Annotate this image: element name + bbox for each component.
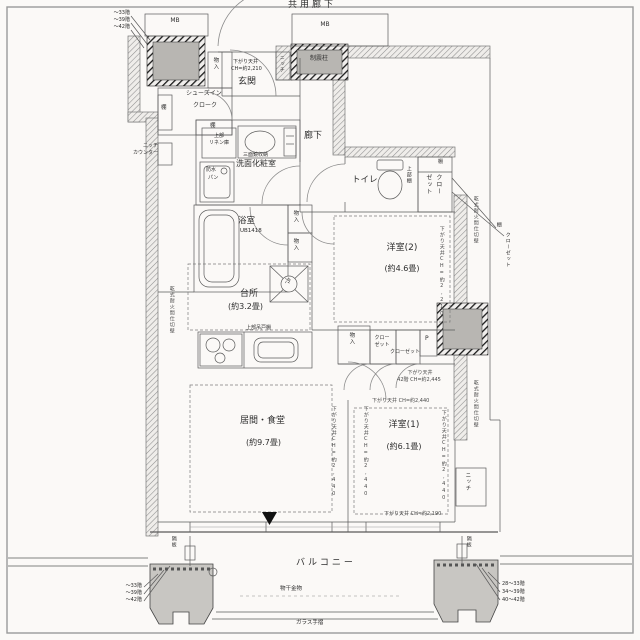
label-floor-range-topleft-3: 〜42階 — [96, 25, 130, 31]
label-mirror-cabinet: 三面鏡収納 — [243, 153, 268, 159]
label-shelf-sic-left: 棚 — [161, 105, 167, 111]
label-bedroom2-size: (約4.6畳) — [372, 264, 432, 273]
label-floor-range-topleft-2: 〜39階 — [96, 18, 130, 24]
label-shoes-in-closet-1: シューズイン — [186, 91, 222, 98]
label-shelf-closet: 棚 — [438, 160, 443, 166]
label-meter-box-right: MB — [310, 22, 340, 29]
label-closet1-line2: ゼット — [368, 343, 396, 349]
label-ceiling-bedroom1-left: 下がり天井CH=約2,440 — [362, 406, 368, 498]
drawing-frame — [7, 7, 633, 633]
label-meter-box-left: MB — [160, 18, 190, 25]
label-partition-right: 隔板 — [465, 536, 471, 548]
direction-marker-icon — [262, 512, 277, 525]
label-closet1-line1: クロー — [368, 336, 396, 342]
label-bedroom1-size: (約6.1畳) — [374, 442, 434, 451]
label-partition-left: 隔板 — [170, 536, 176, 548]
label-fridge: 冷 — [285, 279, 291, 286]
label-shoes-in-closet-2: クローク — [193, 103, 217, 110]
label-closet1-b: クローゼット — [390, 350, 420, 356]
floor-plan: 共用廊下 〜33階 〜39階 〜42階 MB MB 制震柱 物入 ニッチ 下がり… — [0, 0, 640, 640]
label-linen-1: 上部 — [202, 134, 236, 140]
floor-dashed-outlines — [188, 216, 450, 514]
label-storage-mid-1: 物入 — [292, 210, 298, 223]
label-shelf-leader: 棚 — [495, 222, 501, 228]
label-dry-wall-right-lower: 乾式耐火間仕切壁 — [472, 380, 478, 428]
label-seismic-column: 制震柱 — [294, 56, 344, 63]
label-powder-room: 洗面化粧室 — [236, 159, 276, 168]
label-floor-range-topleft-1: 〜33階 — [96, 11, 130, 17]
label-hall-closet-col2: ゼット — [424, 174, 431, 195]
label-floor-range-right-3: 40〜42階 — [502, 598, 525, 604]
label-common-corridor: 共用廊下 — [272, 0, 352, 10]
label-entry-ceiling-2: CH=約2,210 — [231, 67, 262, 73]
label-hall-closet-col1: クロー — [434, 174, 441, 195]
label-ceiling-42f-1: 下がり天井 — [398, 371, 442, 377]
label-laundry-fitting: 物干金物 — [280, 586, 302, 592]
label-bedroom2: 洋室(2) — [372, 243, 432, 253]
label-storage-entry: 物入 — [212, 57, 218, 70]
label-balcony: バルコニー — [296, 558, 356, 568]
label-niche-counter-1: ニッチ — [128, 144, 158, 150]
label-upper-cabinet: 上部吊戸棚 — [246, 326, 271, 332]
label-ceiling-bedroom1-top: 下がり天井 CH=約2,440 — [372, 399, 429, 405]
label-shelf-sic-bottom: 棚 — [210, 123, 216, 129]
label-bath: 浴室 — [238, 217, 255, 227]
label-bath-ub: UB1418 — [240, 228, 262, 234]
label-ceiling-bedroom1-right: 下がり天井CH=約2,440 — [440, 410, 446, 502]
label-floor-range-right-1: 28〜33階 — [502, 582, 525, 588]
label-toilet: トイレ — [352, 176, 378, 186]
label-floor-range-left-1: 〜33階 — [100, 584, 142, 590]
floor-plan-drawing — [0, 0, 640, 640]
label-bedroom1: 洋室(1) — [374, 420, 434, 430]
label-floor-range-left-2: 〜39階 — [100, 591, 142, 597]
label-storage-mid-2: 物入 — [292, 238, 298, 251]
label-dry-wall-right-upper: 乾式耐火間仕切壁 — [472, 196, 478, 244]
structural-columns — [147, 36, 488, 355]
label-ceiling-living: 下がり天井CH=約2,440 — [330, 406, 336, 498]
label-waterproof-pan-1: 防水 — [206, 168, 216, 174]
label-glass-rail: ガラス手摺 — [296, 620, 323, 626]
label-closet-leader: クローゼット — [504, 232, 510, 268]
label-living: 居間・食堂 — [240, 416, 285, 426]
label-storage-kitchen: 物入 — [348, 332, 354, 345]
label-pipe-space: P — [425, 336, 429, 343]
room-lines — [8, 14, 632, 619]
label-living-size: (約9.7畳) — [246, 438, 281, 447]
label-kitchen: 台所 — [240, 289, 258, 299]
label-niche-right: ニッチ — [464, 472, 470, 492]
label-upper-shelf-toilet: 上部棚 — [405, 166, 411, 184]
label-dry-wall-left: 乾式耐火間仕切壁 — [168, 286, 174, 334]
label-entrance: 玄関 — [238, 77, 256, 87]
label-hall: 廊下 — [304, 131, 322, 141]
label-floor-range-right-2: 34〜39階 — [502, 590, 525, 596]
label-kitchen-size: (約3.2畳) — [228, 302, 263, 311]
label-ceiling-42f-2: 42階 CH=約2,445 — [386, 378, 452, 384]
walls — [128, 36, 490, 536]
label-niche-entry: ニッチ — [278, 55, 284, 73]
label-linen-2: リネン庫 — [200, 141, 238, 147]
label-ceiling-bedroom1-bottom: 下がり天井 CH=約2,190 — [384, 512, 441, 518]
label-waterproof-pan-2: パン — [208, 176, 218, 182]
balcony-columns — [150, 560, 498, 624]
label-ceiling-bedroom2: 下がり天井CH=約2,210 — [438, 226, 444, 318]
label-niche-counter-2: カウンター — [124, 151, 158, 157]
label-floor-range-left-3: 〜42階 — [100, 598, 142, 604]
label-entry-ceiling-1: 下がり天井 — [233, 60, 258, 66]
